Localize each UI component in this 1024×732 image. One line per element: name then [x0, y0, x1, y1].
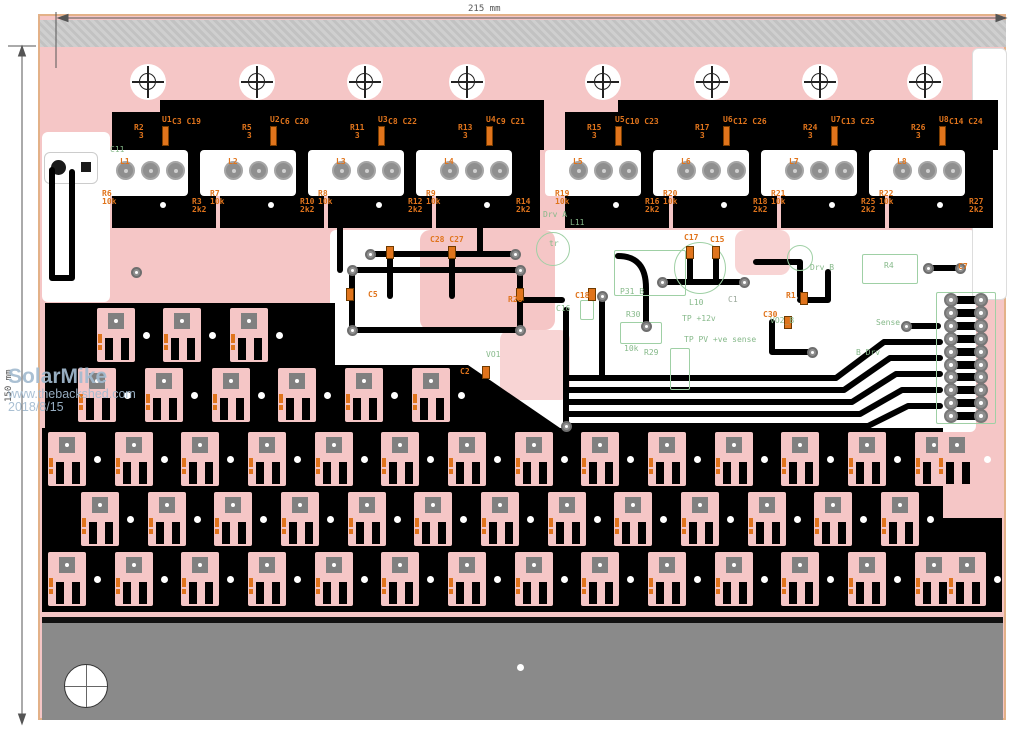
power-pad — [166, 161, 185, 180]
via — [347, 265, 358, 276]
silk-label-r29: R29 — [644, 349, 658, 357]
mosfet-label: U4 — [486, 116, 496, 124]
diode-footprint — [781, 432, 837, 488]
series-resistor-label: R14 2k2 — [516, 198, 530, 214]
smd-pad — [800, 292, 808, 305]
pull-resistor-label: R22 10k — [879, 190, 893, 206]
gate-resistor-label: R15 3 — [587, 124, 601, 140]
diode-footprint — [848, 432, 904, 488]
inductor-label: L5 — [573, 158, 583, 166]
series-resistor-label: R16 2k2 — [645, 198, 659, 214]
gate-resistor-label: R13 3 — [458, 124, 472, 140]
via-dot — [937, 202, 943, 208]
via — [365, 249, 376, 260]
mosfet-label: U5 — [615, 116, 625, 124]
connector-pad-right — [974, 332, 988, 346]
pull-resistor-label: R21 10k — [771, 190, 785, 206]
mount-hole-target — [585, 64, 621, 100]
via-dot — [160, 202, 166, 208]
via — [515, 325, 526, 336]
connector-pad-right — [974, 358, 988, 372]
diode-footprint — [48, 432, 104, 488]
diode-footprint — [230, 308, 286, 364]
gate-resistor-label: R2 3 — [134, 124, 144, 140]
series-resistor-label: R18 2k2 — [753, 198, 767, 214]
connector-pad-right — [974, 293, 988, 307]
gate-resistor-label: R17 3 — [695, 124, 709, 140]
via — [561, 421, 572, 432]
power-pad — [249, 161, 268, 180]
diode-footprint — [648, 432, 704, 488]
power-pad — [274, 161, 293, 180]
diode-footprint — [681, 492, 737, 548]
silk-label-r28: R28 — [508, 296, 522, 304]
gate-pad — [162, 126, 169, 146]
mosfet-label: U3 — [378, 116, 388, 124]
silk-label-vo1: VO1 — [486, 351, 500, 359]
smd-pad — [712, 246, 720, 259]
cap-label: C12 C26 — [733, 118, 767, 126]
diode-footprint — [481, 492, 537, 548]
silk-label-l11: L11 — [570, 219, 584, 227]
gate-pad — [723, 126, 730, 146]
via — [739, 277, 750, 288]
diode-footprint — [348, 492, 404, 548]
gate-resistor-label: R11 3 — [350, 124, 364, 140]
cap-label: C8 C22 — [388, 118, 417, 126]
diode-footprint — [48, 552, 104, 608]
diode-footprint — [115, 552, 171, 608]
mount-hole-target — [347, 64, 383, 100]
smd-pad — [448, 246, 456, 259]
via-dot — [268, 202, 274, 208]
power-pad — [727, 161, 746, 180]
series-resistor-label: R27 2k2 — [969, 198, 983, 214]
diode-footprint — [315, 432, 371, 488]
silk-label-c17: C17 — [684, 234, 698, 242]
series-resistor-label: R25 2k2 — [861, 198, 875, 214]
connector-pad-left — [944, 358, 958, 372]
diode-footprint — [715, 432, 771, 488]
diode-footprint — [515, 432, 571, 488]
gate-resistor-label: R26 3 — [911, 124, 925, 140]
diode-footprint — [163, 308, 219, 364]
mount-hole-target — [907, 64, 943, 100]
power-pad — [918, 161, 937, 180]
via-dot — [484, 202, 490, 208]
inductor-label: L6 — [681, 158, 691, 166]
silk-label-vo2_b: VO2_B — [770, 317, 794, 325]
silk-label-drv-b: Drv B — [810, 264, 834, 272]
connector-pad-left — [944, 319, 958, 333]
power-pad — [490, 161, 509, 180]
pull-resistor-label: R9 10k — [426, 190, 440, 206]
silk-label-c7: C7 — [958, 263, 968, 271]
diode-footprint — [248, 432, 304, 488]
via — [807, 347, 818, 358]
mosfet-label: U6 — [723, 116, 733, 124]
gate-pad — [939, 126, 946, 146]
mount-hole-target — [130, 64, 166, 100]
diode-footprint — [715, 552, 771, 608]
cap-label: C14 C24 — [949, 118, 983, 126]
r29-outline — [670, 348, 690, 390]
power-pad — [141, 161, 160, 180]
silk-label-tp-12v: TP +12v — [682, 315, 716, 323]
diode-footprint — [648, 552, 704, 608]
diode-footprint — [145, 368, 201, 424]
connector-pad-right — [974, 319, 988, 333]
diode-footprint — [814, 492, 870, 548]
cap-label: C13 C25 — [841, 118, 875, 126]
silk-label-c1: C1 — [728, 296, 738, 304]
series-resistor-label: R3 2k2 — [192, 198, 206, 214]
silk-label-l10: L10 — [689, 299, 703, 307]
silk-label-drv-a: Drv A — [543, 211, 567, 219]
silk-label-c16: C16 — [556, 305, 570, 313]
diode-footprint — [381, 552, 437, 608]
via-dot — [829, 202, 835, 208]
silk-label-tp-pv-ve-sense: TP PV +ve sense — [684, 336, 756, 344]
watermark-author: SolarMike — [8, 366, 136, 388]
inductor-label: L4 — [444, 158, 454, 166]
gate-pad — [831, 126, 838, 146]
watermark-date: 2018/8/15 — [8, 401, 136, 414]
connector-pad-left — [944, 409, 958, 423]
diode-footprint — [412, 368, 468, 424]
diode-footprint — [148, 492, 204, 548]
smd-pad — [346, 288, 354, 301]
pcb-layout-view: 215 mm 150 mm C3 C19R2 3U1L1R6 10kR3 2k2… — [0, 0, 1024, 732]
mount-hole-target — [694, 64, 730, 100]
diode-footprint — [581, 552, 637, 608]
via — [131, 267, 142, 278]
cap-label: C3 C19 — [172, 118, 201, 126]
via-dot — [376, 202, 382, 208]
diode-footprint — [848, 552, 904, 608]
silk-label-b-drv: B Drv — [856, 349, 880, 357]
mount-hole-target — [239, 64, 275, 100]
silk-label-p31_b: P31_B — [620, 288, 644, 296]
pull-resistor-label: R6 10k — [102, 190, 116, 206]
mosfet-label: U7 — [831, 116, 841, 124]
diode-footprint — [938, 432, 994, 488]
diode-footprint — [748, 492, 804, 548]
cap-label: C9 C21 — [496, 118, 525, 126]
power-pad — [702, 161, 721, 180]
diode-footprint — [781, 552, 837, 608]
diode-footprint — [381, 432, 437, 488]
power-pad — [357, 161, 376, 180]
diode-footprint — [181, 432, 237, 488]
power-pad — [810, 161, 829, 180]
mount-hole-target — [802, 64, 838, 100]
via-dot — [721, 202, 727, 208]
silk-label-c11: C11 — [110, 146, 124, 154]
diode-footprint — [115, 432, 171, 488]
diode-footprint — [212, 368, 268, 424]
pull-resistor-label: R7 10k — [210, 190, 224, 206]
smd-pad — [482, 366, 490, 379]
gate-pad — [486, 126, 493, 146]
via-dot — [613, 202, 619, 208]
gate-resistor-label: R5 3 — [242, 124, 252, 140]
silk-label-c18: C18 — [575, 292, 589, 300]
diode-footprint — [881, 492, 937, 548]
series-resistor-label: R10 2k2 — [300, 198, 314, 214]
smd-pad — [386, 246, 394, 259]
silk-label-c28-c27: C28 C27 — [430, 236, 464, 244]
diode-footprint — [248, 552, 304, 608]
connector-pad-right — [974, 306, 988, 320]
silk-label-r1: R1 — [786, 292, 796, 300]
mosfet-label: U1 — [162, 116, 172, 124]
via — [347, 325, 358, 336]
silk-label-sense: Sense — [876, 319, 900, 327]
diode-footprint — [81, 492, 137, 548]
pull-resistor-label: R20 10k — [663, 190, 677, 206]
gate-pad — [378, 126, 385, 146]
diode-footprint — [214, 492, 270, 548]
diode-footprint — [315, 552, 371, 608]
connector-pad-left — [944, 345, 958, 359]
silk-label-tr: tr — [549, 240, 559, 248]
silk-label-10k: 10k — [624, 345, 638, 353]
inductor-label: L8 — [897, 158, 907, 166]
via — [515, 265, 526, 276]
connector-pad-left — [944, 332, 958, 346]
mosfet-label: U8 — [939, 116, 949, 124]
via — [510, 249, 521, 260]
diode-footprint — [581, 432, 637, 488]
diode-footprint — [281, 492, 337, 548]
silk-label-c2: C2 — [460, 368, 470, 376]
silk-label-c5: C5 — [368, 291, 378, 299]
power-pad — [943, 161, 962, 180]
connector-pad-right — [974, 409, 988, 423]
mount-hole-target — [449, 64, 485, 100]
diode-footprint — [278, 368, 334, 424]
diode-footprint — [345, 368, 401, 424]
via — [901, 321, 912, 332]
c16-outline — [580, 300, 594, 320]
diode-footprint — [181, 552, 237, 608]
l9-toroid-outline — [536, 232, 570, 266]
gate-resistor-label: R24 3 — [803, 124, 817, 140]
via — [923, 263, 934, 274]
connector-pad-right — [974, 345, 988, 359]
power-pad — [465, 161, 484, 180]
cap-label: C6 C20 — [280, 118, 309, 126]
power-pad — [619, 161, 638, 180]
power-pad — [835, 161, 854, 180]
gate-pad — [615, 126, 622, 146]
diode-footprint — [548, 492, 604, 548]
inductor-label: L7 — [789, 158, 799, 166]
connector-pad-left — [944, 306, 958, 320]
smd-pad — [686, 246, 694, 259]
diode-footprint — [948, 552, 1004, 608]
power-pad — [594, 161, 613, 180]
via — [641, 321, 652, 332]
diode-footprint — [97, 308, 153, 364]
via — [597, 291, 608, 302]
inductor-label: L3 — [336, 158, 346, 166]
diode-footprint — [448, 432, 504, 488]
c11-footprint — [44, 152, 98, 184]
silk-label-r30: R30 — [626, 311, 640, 319]
diode-footprint — [414, 492, 470, 548]
via — [657, 277, 668, 288]
watermark: SolarMike www.thebackshed.com 2018/8/15 — [8, 366, 136, 414]
mosfet-label: U2 — [270, 116, 280, 124]
cap-label: C10 C23 — [625, 118, 659, 126]
pull-resistor-label: R19 10k — [555, 190, 569, 206]
gate-pad — [270, 126, 277, 146]
inductor-label: L2 — [228, 158, 238, 166]
silk-label-r4: R4 — [884, 262, 894, 270]
diode-footprint — [448, 552, 504, 608]
diode-footprint — [614, 492, 670, 548]
diode-footprint — [515, 552, 571, 608]
silk-label-c15: C15 — [710, 236, 724, 244]
pull-resistor-label: R8 10k — [318, 190, 332, 206]
inductor-label: L1 — [120, 158, 130, 166]
connector-pad-left — [944, 293, 958, 307]
power-pad — [382, 161, 401, 180]
series-resistor-label: R12 2k2 — [408, 198, 422, 214]
